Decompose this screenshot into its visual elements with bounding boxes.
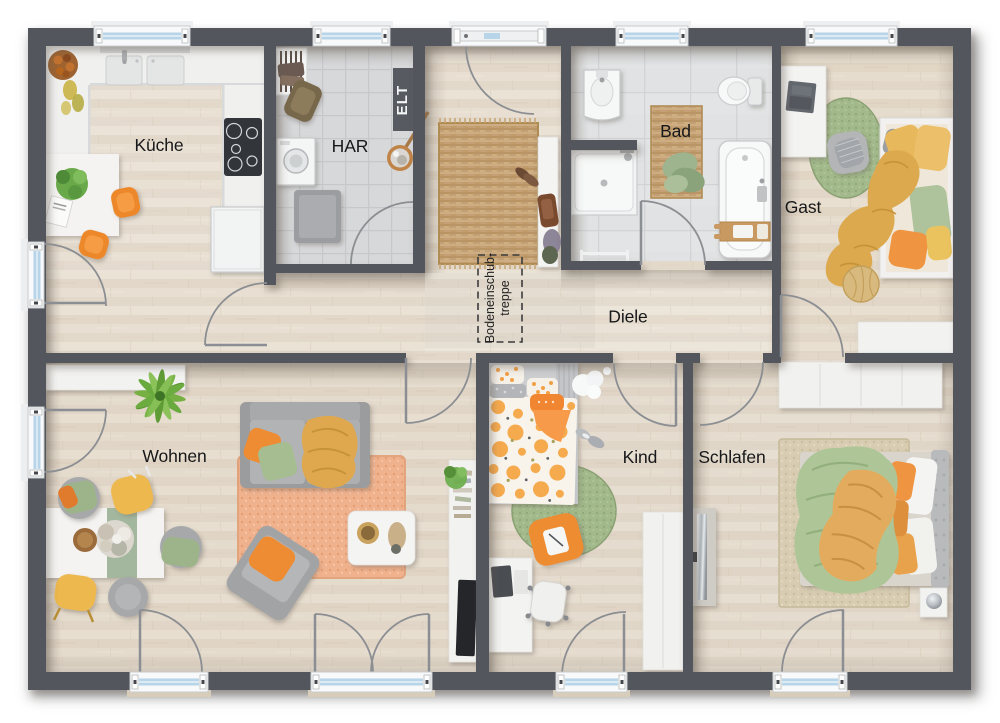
svg-text:treppe: treppe (498, 280, 512, 315)
svg-text:Küche: Küche (134, 135, 183, 155)
svg-text:Gast: Gast (785, 197, 822, 217)
svg-text:Bodeneinschub-: Bodeneinschub- (483, 253, 497, 343)
svg-text:Bad: Bad (660, 121, 691, 141)
svg-text:Wohnen: Wohnen (142, 446, 206, 466)
svg-text:Schlafen: Schlafen (698, 447, 765, 467)
svg-text:ELT: ELT (394, 85, 411, 116)
svg-text:HAR: HAR (332, 136, 369, 156)
svg-text:Kind: Kind (623, 447, 658, 467)
svg-text:Diele: Diele (608, 307, 647, 327)
